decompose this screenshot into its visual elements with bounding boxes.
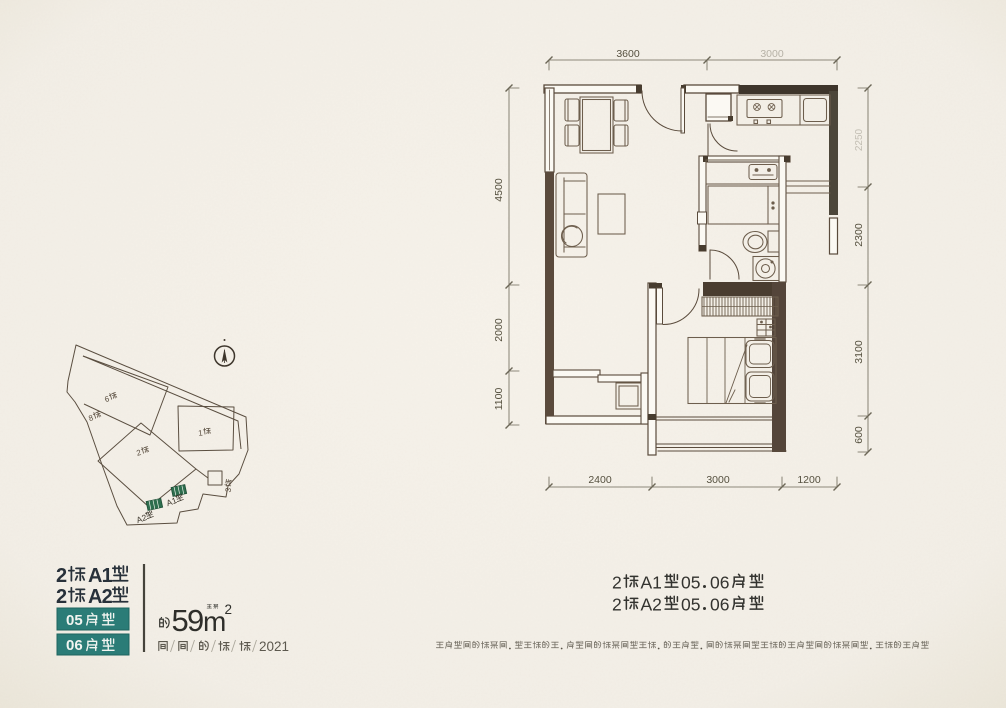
svg-text:2400: 2400 xyxy=(588,474,612,486)
svg-text:m: m xyxy=(203,606,226,637)
svg-text:4500: 4500 xyxy=(493,178,505,202)
svg-text:2: 2 xyxy=(56,586,67,608)
svg-text:A2: A2 xyxy=(88,586,113,608)
svg-text:2000: 2000 xyxy=(493,318,505,342)
svg-text:3100: 3100 xyxy=(853,340,865,364)
svg-text:3000: 3000 xyxy=(760,48,784,60)
svg-text:2021: 2021 xyxy=(259,639,289,654)
svg-text:2250: 2250 xyxy=(854,128,865,151)
svg-text:06: 06 xyxy=(710,595,729,615)
svg-text:05: 05 xyxy=(681,573,700,593)
svg-text:1200: 1200 xyxy=(797,474,821,486)
svg-text:2: 2 xyxy=(225,602,233,617)
svg-text:A1: A1 xyxy=(641,573,662,593)
svg-text:06: 06 xyxy=(66,637,83,654)
svg-text:600: 600 xyxy=(853,426,865,444)
svg-text:2300: 2300 xyxy=(853,223,865,247)
svg-text:3000: 3000 xyxy=(706,474,730,486)
svg-text:05: 05 xyxy=(66,612,83,629)
svg-text:3600: 3600 xyxy=(616,48,640,60)
svg-text:05: 05 xyxy=(681,595,700,615)
svg-text:06: 06 xyxy=(710,573,729,593)
svg-text:A1: A1 xyxy=(88,565,113,587)
svg-text:A2: A2 xyxy=(641,595,662,615)
svg-text:59: 59 xyxy=(172,603,203,638)
svg-text:2: 2 xyxy=(56,565,67,587)
svg-text:2: 2 xyxy=(612,595,622,615)
svg-text:1100: 1100 xyxy=(493,388,505,411)
svg-text:2: 2 xyxy=(612,573,622,593)
